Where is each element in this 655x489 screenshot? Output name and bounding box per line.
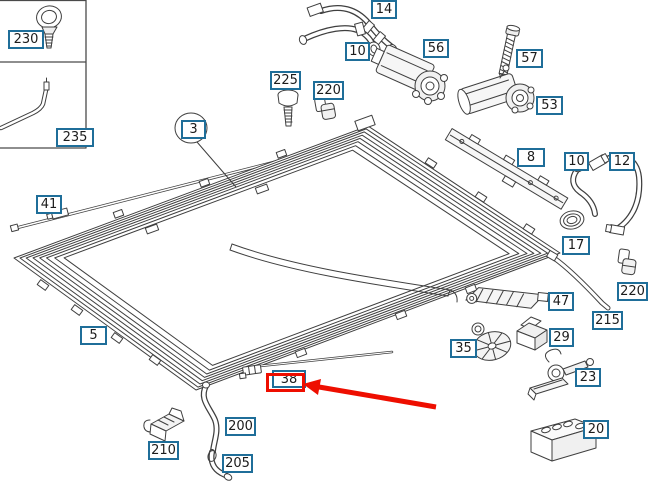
- part-label-10-right[interactable]: 10: [564, 152, 589, 171]
- part-label-235[interactable]: 235: [56, 128, 94, 147]
- part-label-230[interactable]: 230: [8, 30, 44, 49]
- part-label-57[interactable]: 57: [516, 49, 543, 68]
- part-label-53[interactable]: 53: [536, 96, 563, 115]
- part-label-220-right[interactable]: 220: [617, 282, 648, 301]
- part-label-47[interactable]: 47: [548, 292, 574, 311]
- part-label-23[interactable]: 23: [575, 368, 601, 387]
- part-label-215[interactable]: 215: [592, 311, 623, 330]
- part-label-3[interactable]: 3: [181, 120, 206, 139]
- highlight-box: [266, 373, 305, 392]
- part-labels-layer: 230 235 41 3 14 10 56 225 220 57 53 8 10…: [0, 0, 655, 489]
- part-label-5[interactable]: 5: [80, 326, 107, 345]
- part-label-10-top[interactable]: 10: [345, 42, 370, 61]
- part-label-29[interactable]: 29: [549, 328, 574, 347]
- part-label-14[interactable]: 14: [371, 0, 397, 19]
- part-label-200[interactable]: 200: [225, 417, 256, 436]
- part-label-8[interactable]: 8: [517, 148, 545, 167]
- part-label-210[interactable]: 210: [148, 441, 179, 460]
- part-label-220-top[interactable]: 220: [313, 81, 344, 100]
- part-label-35[interactable]: 35: [450, 339, 477, 358]
- part-label-41[interactable]: 41: [36, 195, 62, 214]
- part-label-56[interactable]: 56: [423, 39, 449, 58]
- part-label-20[interactable]: 20: [583, 420, 609, 439]
- part-label-225[interactable]: 225: [270, 71, 301, 90]
- part-label-17[interactable]: 17: [562, 236, 590, 255]
- part-label-12[interactable]: 12: [609, 152, 635, 171]
- part-label-205[interactable]: 205: [222, 454, 253, 473]
- parts-diagram-canvas: 230 235 41 3 14 10 56 225 220 57 53 8 10…: [0, 0, 655, 489]
